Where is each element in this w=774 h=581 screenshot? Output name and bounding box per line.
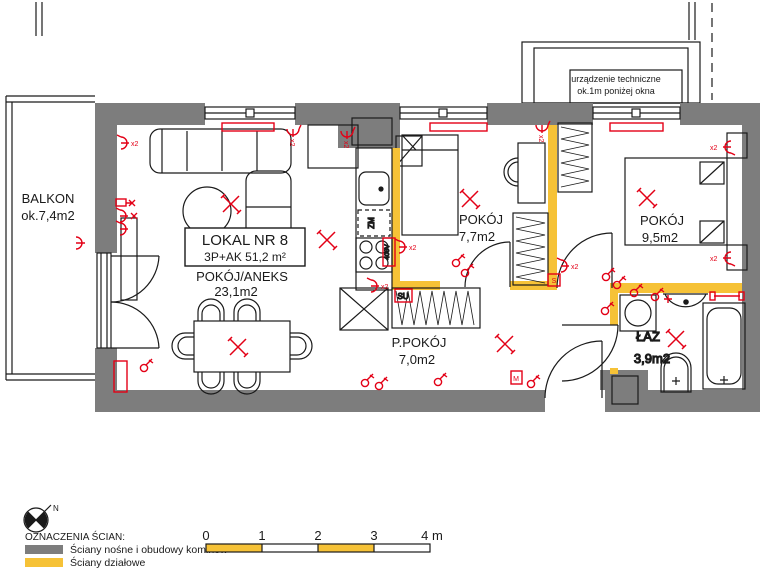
- switch-icon: [527, 375, 540, 388]
- kitchen-shaft: [340, 288, 388, 330]
- ceiling-light-icon: [460, 189, 480, 209]
- window-living: [205, 107, 295, 119]
- scale-tick: 0: [202, 528, 209, 543]
- svg-text:x2: x2: [571, 264, 579, 271]
- floor-plan-drawing: urządzenie techniczne ok.1m poniżej okna…: [0, 0, 774, 581]
- aneks-area: 23,1m2: [214, 284, 257, 299]
- legend-title: OZNACZENIA ŚCIAN:: [25, 530, 125, 543]
- balcony-area: ok.7,4m2: [21, 208, 74, 223]
- dishwasher: ZM: [358, 210, 390, 236]
- dining-set: [172, 299, 312, 394]
- bedroom1-name: POKÓJ: [459, 212, 503, 227]
- switch-icon: [452, 254, 465, 267]
- radiator: [610, 123, 663, 131]
- switch-icon: [461, 264, 474, 277]
- towel-rail: [710, 292, 744, 300]
- switch-icon: [140, 359, 153, 372]
- ceiling-light-icon: [666, 329, 686, 349]
- balcony-name: BALKON: [22, 191, 75, 206]
- svg-text:M: M: [513, 376, 519, 383]
- svg-text:x2: x2: [381, 284, 389, 291]
- sofa: [150, 129, 291, 241]
- svg-text:x2: x2: [710, 145, 718, 152]
- outlet-icon: x2: [287, 125, 301, 147]
- windows: [205, 107, 680, 119]
- tv-point-icon: [116, 199, 135, 206]
- window-bedroom2: [593, 107, 680, 119]
- unit-type-area: 3P+AK 51,2 m²: [204, 250, 286, 264]
- wardrobe: [513, 213, 548, 285]
- washing-machine: [620, 295, 656, 331]
- floor-plan-page: urządzenie techniczne ok.1m poniżej okna…: [0, 0, 774, 581]
- north-arrow-icon: N: [24, 504, 59, 532]
- dishwasher-label: ZM: [367, 217, 376, 229]
- stove-power-label: 400V: [384, 244, 391, 260]
- bathtub: [703, 303, 745, 389]
- unit-name: LOKAL NR 8: [202, 232, 288, 249]
- svg-text:x2: x2: [288, 139, 295, 147]
- legend-swatch-load-bearing: [25, 545, 63, 554]
- scale-tick: 2: [314, 528, 321, 543]
- legend: OZNACZENIA ŚCIAN: Ściany nośne i obudowy…: [25, 530, 228, 569]
- scale-tick: 1: [258, 528, 265, 543]
- switch-icon: [434, 373, 447, 386]
- svg-text:x2: x2: [131, 141, 139, 148]
- legend-label-partition: Ściany działowe: [70, 556, 145, 569]
- window-bedroom1: [400, 107, 487, 119]
- technical-note-line1: urządzenie techniczne: [571, 74, 661, 84]
- bathroom-name: ŁAZ: [636, 329, 660, 344]
- bathroom-area: 3,9m2: [634, 351, 670, 366]
- scale-tick: 4 m: [421, 528, 443, 543]
- bedroom-2: POKÓJ 9,5m2: [558, 123, 747, 270]
- wardrobe: [558, 123, 592, 192]
- svg-text:x2: x2: [710, 256, 718, 263]
- radiator: [430, 123, 487, 131]
- bedroom2-area: 9,5m2: [642, 230, 678, 245]
- wall-light-icon: [76, 237, 85, 249]
- bedroom2-name: POKÓJ: [640, 213, 684, 228]
- tv-cabinet: [121, 218, 137, 300]
- outlet-icon: [116, 221, 128, 235]
- bedroom-1: POKÓJ 7,7m2: [402, 135, 548, 285]
- dryer-label: SU: [397, 292, 408, 301]
- bedroom1-area: 7,7m2: [459, 229, 495, 244]
- technical-device-box: urządzenie techniczne ok.1m poniżej okna: [522, 42, 700, 103]
- hall-name: P.POKÓJ: [392, 335, 447, 350]
- outlet-icon: [116, 208, 137, 222]
- outlet-icon: x2: [710, 252, 735, 266]
- technical-note-line2: ok.1m poniżej okna: [577, 86, 655, 96]
- ceiling-light-icon: [228, 337, 248, 357]
- svg-text:x2: x2: [409, 245, 417, 252]
- switch-icon: [602, 268, 615, 281]
- ceiling-light-icon: [317, 230, 337, 250]
- hall-area: 7,0m2: [399, 352, 435, 367]
- outlet-icon: x2: [117, 135, 139, 149]
- svg-text:x2: x2: [537, 135, 544, 143]
- ceiling-light-icon: [637, 188, 657, 208]
- svg-text:x2: x2: [342, 141, 349, 149]
- switch-icon: [375, 377, 388, 390]
- bed-single: [402, 135, 458, 235]
- scale-bar: 0 1 2 3 4 m: [202, 528, 442, 552]
- hall-wardrobe: SU: [392, 288, 480, 328]
- svg-text:S: S: [552, 278, 557, 285]
- legend-swatch-partition: [25, 558, 63, 567]
- radiator: [222, 123, 274, 131]
- aneks-name: POKÓJ/ANEKS: [196, 269, 288, 284]
- stove: 400V: [356, 238, 395, 272]
- entry-door: [545, 341, 605, 412]
- unit-label: LOKAL NR 8 3P+AK 51,2 m²: [185, 228, 305, 266]
- balcony: BALKON ok.7,4m2: [6, 96, 95, 380]
- desk: [504, 143, 545, 203]
- outlet-icon: x2: [710, 141, 735, 155]
- scale-tick: 3: [370, 528, 377, 543]
- balcony-railing: [6, 96, 95, 380]
- legend-label-load-bearing: Ściany nośne i obudowy kominów: [70, 543, 228, 556]
- kitchen: ZM 400V: [340, 148, 395, 330]
- meter-box-icon: M: [511, 371, 522, 384]
- ceiling-light-icon: [495, 334, 515, 354]
- north-label: N: [53, 504, 59, 513]
- kitchen-sink: [359, 172, 389, 205]
- bathroom-sink: [663, 294, 708, 307]
- hallway: SU P.POKÓJ 7,0m2: [392, 288, 480, 367]
- switch-icon: [361, 374, 374, 387]
